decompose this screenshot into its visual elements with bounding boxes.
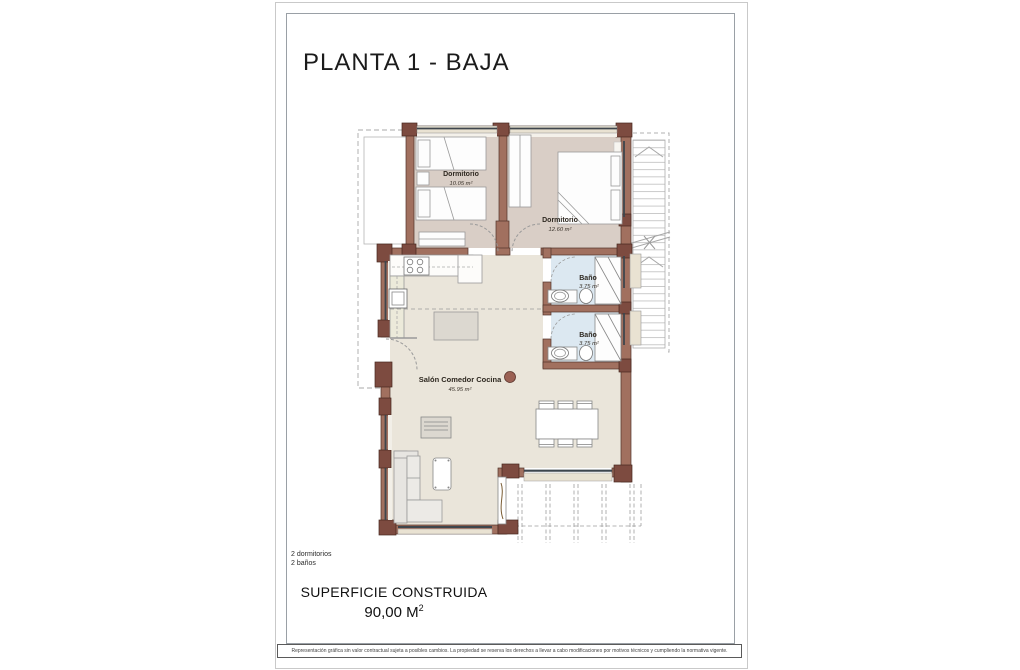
room-label: Dormitorio [542,217,578,224]
room-area: 10.05 m² [450,181,474,187]
nightstand-icon [417,172,429,185]
window-south [398,529,492,534]
room-label: Dormitorio [443,171,479,178]
summary-bathrooms: 2 baños [291,559,331,568]
window-bedroom1 [417,126,497,133]
toilet-icon [580,346,593,361]
tv-unit-icon [421,417,451,438]
planter [364,137,407,244]
room-label: Baño [579,332,597,339]
rear-terrace [515,484,641,543]
room-area: 3.75 m² [579,284,600,290]
coffee-table-icon [433,458,451,490]
stove-icon [404,257,429,275]
room-area: 45.95 m² [449,387,473,393]
kitchen-island [434,312,478,340]
window-terrace [524,473,612,481]
floor-plan: Dormitorio 10.05 m² Dormitorio 12.60 m² … [350,100,690,580]
toilet-icon [580,289,593,304]
window-sill-bath2 [630,311,641,345]
built-area-label: SUPERFICIE CONSTRUIDA [289,584,499,600]
window-bedroom2 [510,126,617,133]
page: PLANTA 1 - BAJA [0,0,1020,670]
room-summary: 2 dormitorios 2 baños [291,550,331,568]
disclaimer-bar: Representación gráfica sin valor contrac… [277,644,742,658]
sink-icon [552,347,569,359]
dining-table-icon [536,409,598,439]
room-label: Baño [579,275,597,282]
built-area-value: 90,00 M2 [289,603,499,621]
page-title: PLANTA 1 - BAJA [303,49,510,77]
room-area: 12.60 m² [549,227,573,233]
terrace-door [498,477,506,524]
sink-icon [552,290,569,302]
window-sill-bath1 [630,254,641,288]
built-area-block: SUPERFICIE CONSTRUIDA 90,00 M2 [289,584,499,621]
room-area: 3.75 m² [579,341,600,347]
room-label: Salón Comedor Cocina [419,375,502,384]
column [505,372,516,383]
summary-bedrooms: 2 dormitorios [291,550,331,559]
